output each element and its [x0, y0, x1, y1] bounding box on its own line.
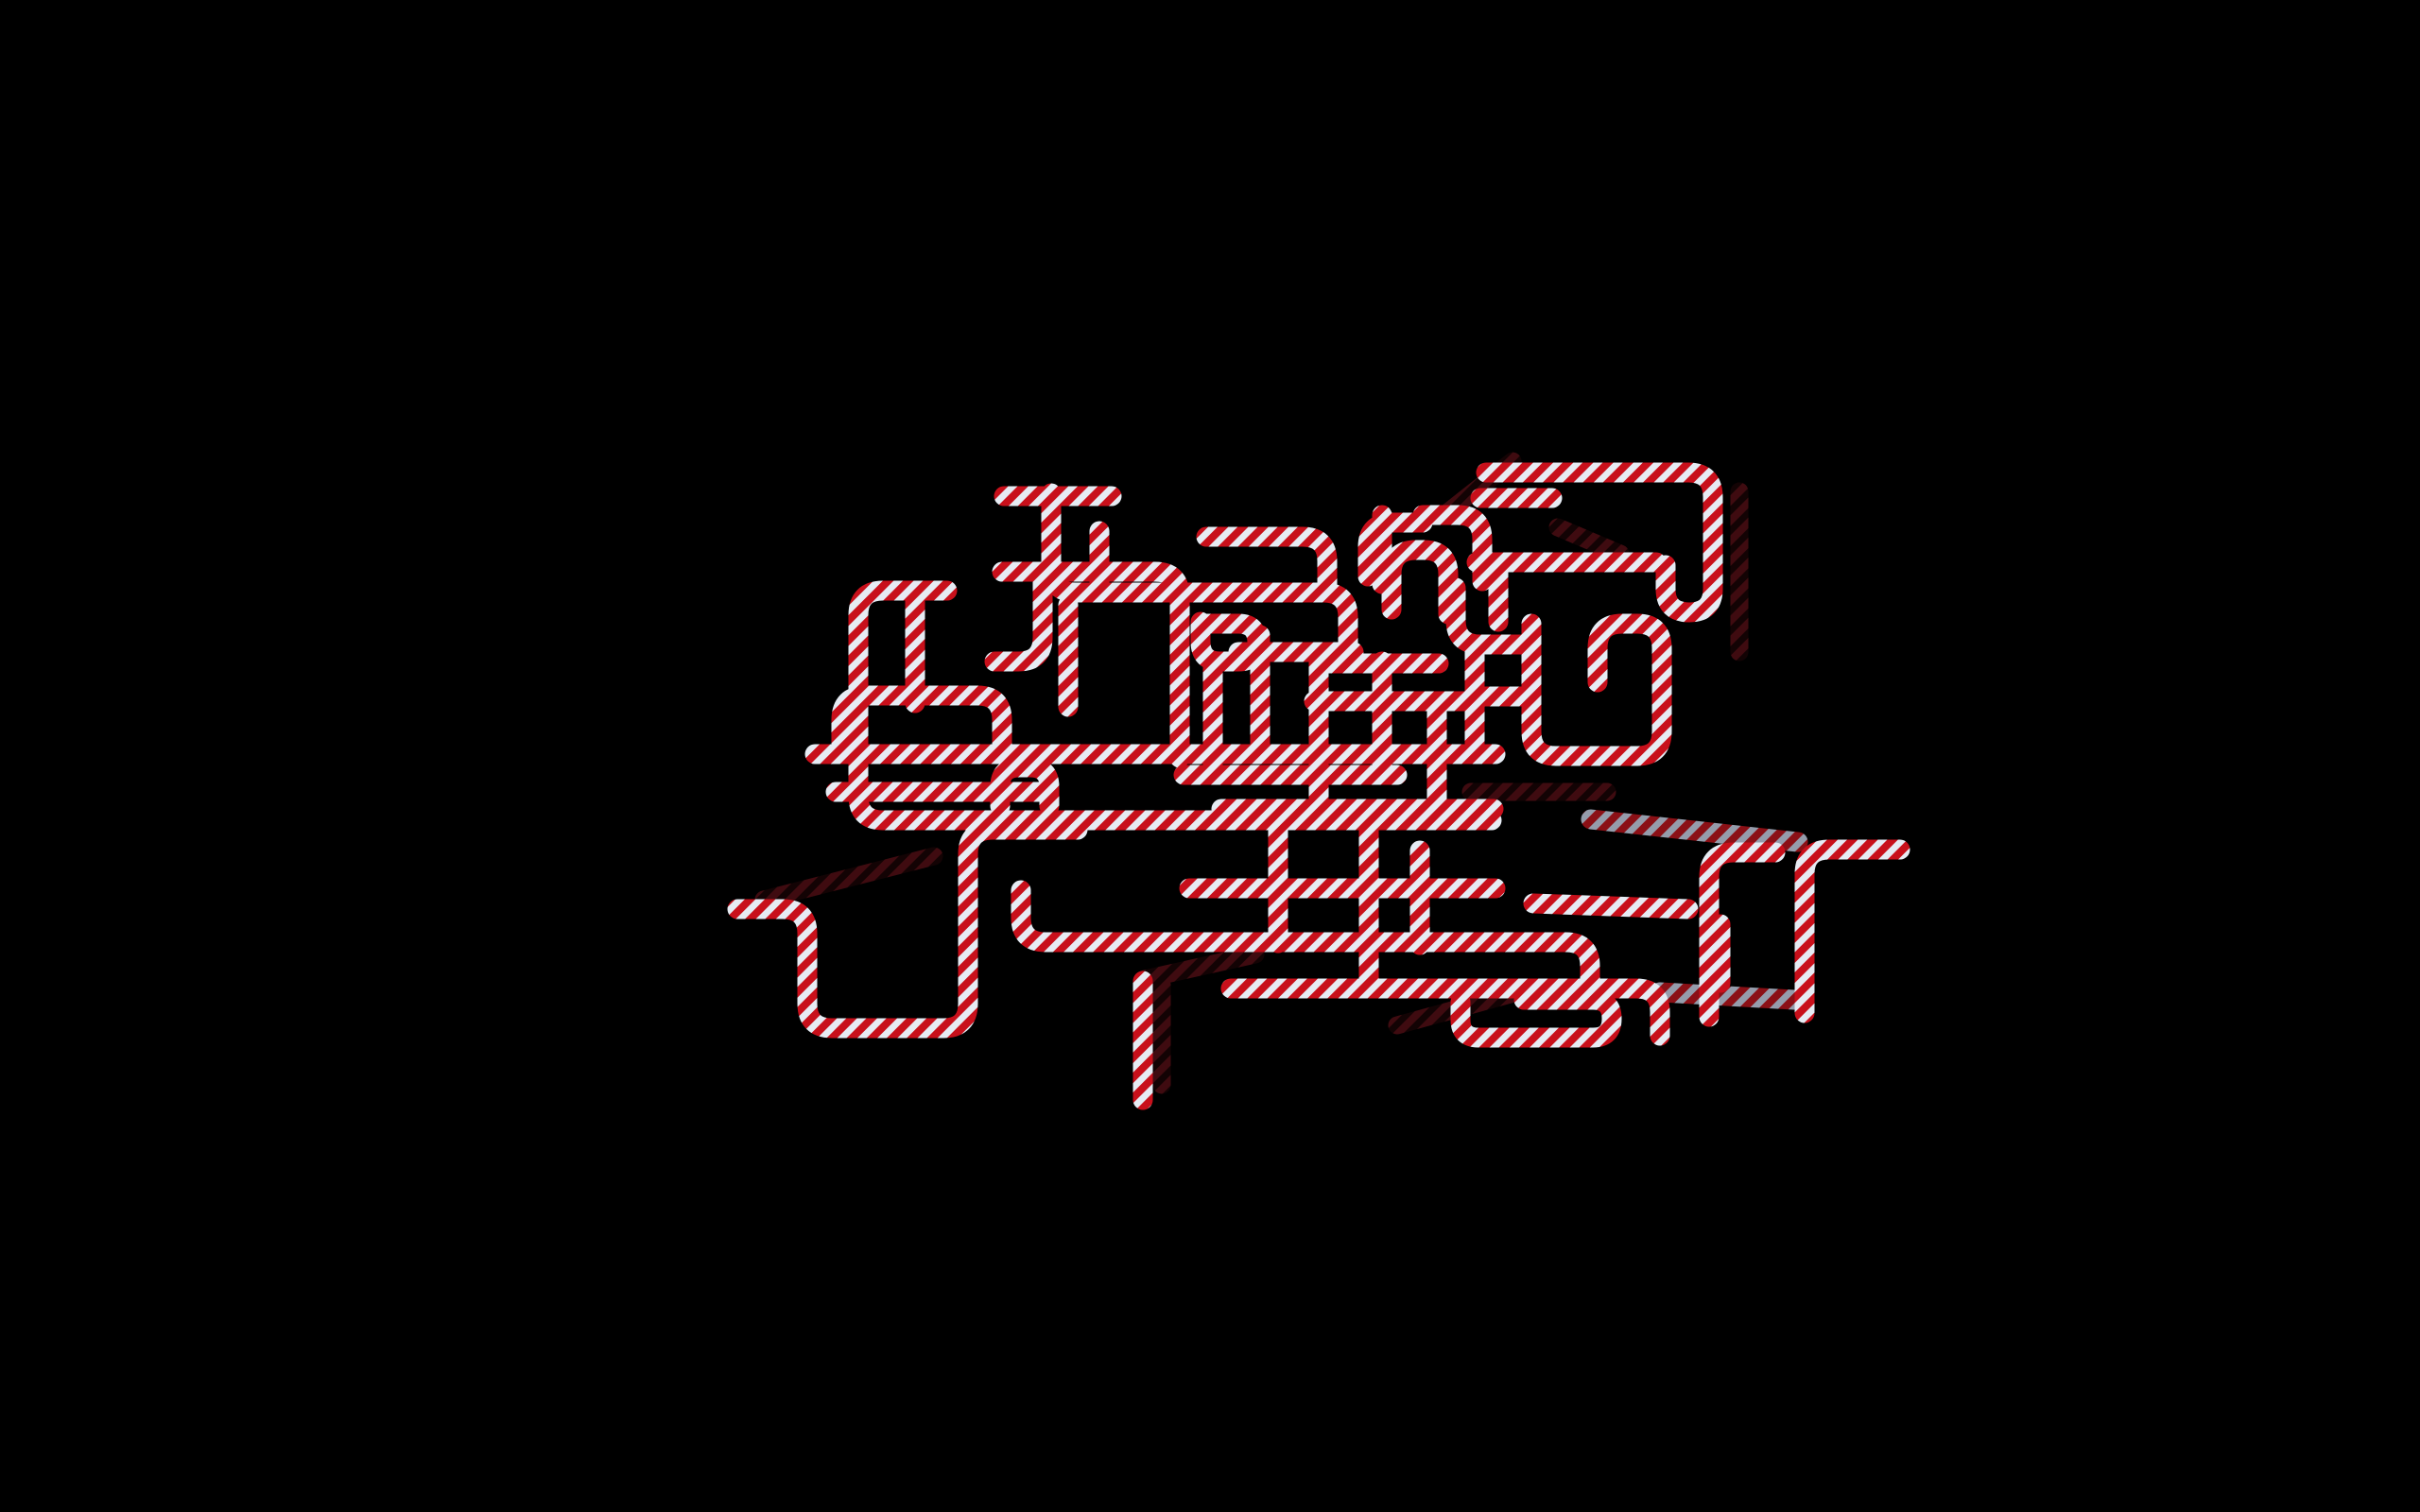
candy-cane-tangle — [0, 0, 2420, 1512]
render-viewport — [0, 0, 2420, 1512]
candy-segment-top-small-table — [1206, 537, 1327, 588]
candy-segment-right-bar-955 — [1533, 903, 1688, 909]
candy-segment-shadow-knot-piece — [1558, 527, 1620, 554]
candy-segment-shadow-diag-left — [764, 856, 934, 900]
candy-segment-knot-arch — [1391, 550, 1448, 614]
candy-segment-shaded-rail-ext — [1660, 992, 1794, 1000]
